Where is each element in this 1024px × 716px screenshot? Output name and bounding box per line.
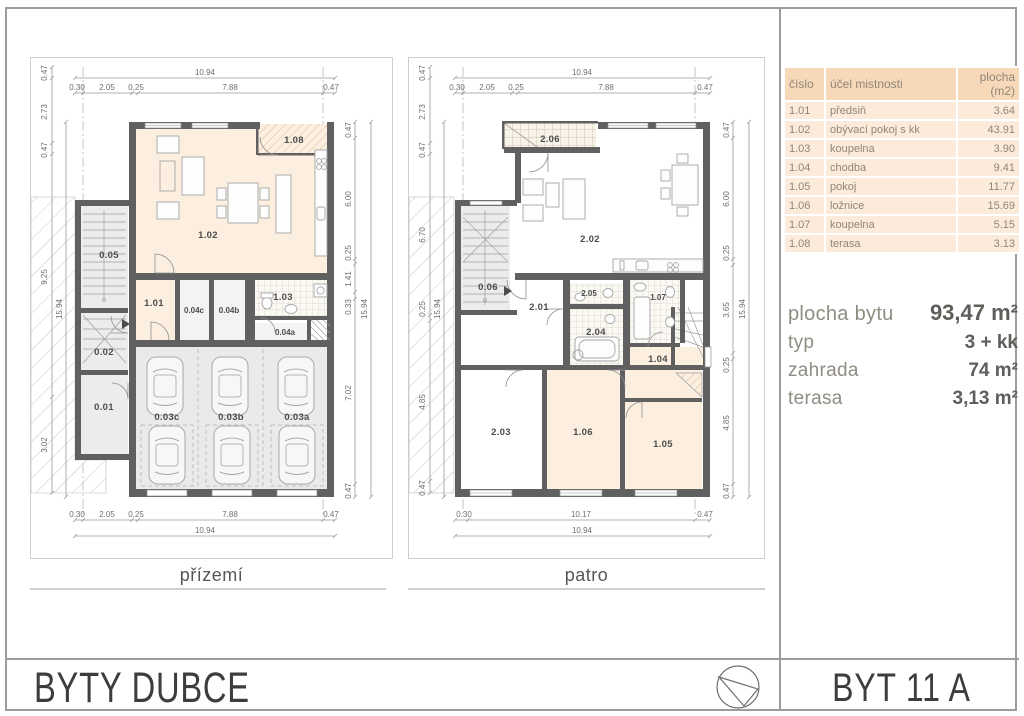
window <box>705 347 711 367</box>
dimension-label: 0.47 <box>323 510 339 519</box>
room-label: 2.04 <box>586 327 606 338</box>
dimension-label: 0.47 <box>418 480 427 496</box>
dimension-label: 15.94 <box>55 298 64 319</box>
floorplan-sheet: 1.08 1.02 0.05 1.01 0.04c 0.04b 1.03 0.0… <box>0 0 1024 716</box>
info-label: typ <box>788 332 814 354</box>
dimension-label: 0.47 <box>697 510 713 519</box>
room-label: 1.01 <box>144 298 164 309</box>
dimension-label: 3.65 <box>722 302 731 318</box>
car-icon <box>278 357 314 415</box>
info-value: 93,47 m² <box>930 300 1018 326</box>
dimension-label: 0.25 <box>128 510 144 519</box>
room-label: 1.07 <box>650 293 666 302</box>
dimension-label: 10.17 <box>571 510 592 519</box>
bathtub <box>634 297 650 339</box>
dimension-label: 9.25 <box>40 269 49 285</box>
room-area-table: číslo účel mistnosti plocha (m2) 1.01pře… <box>783 66 1021 254</box>
dimension-label: 10.94 <box>195 68 216 77</box>
dimension-label: 0.30 <box>69 510 85 519</box>
toilet <box>605 315 615 324</box>
dimension-label: 0.47 <box>722 122 731 138</box>
dimension-label: 2.05 <box>479 83 495 92</box>
dimension-label: 0.47 <box>323 83 339 92</box>
dimension-label: 7.02 <box>344 385 353 401</box>
dimension-label: 0.47 <box>344 483 353 499</box>
window <box>470 201 502 205</box>
toilet-tank <box>261 293 273 298</box>
garage-door <box>277 490 317 496</box>
room-label: 0.04a <box>275 328 296 337</box>
table-row: 1.08terasa3.13 <box>784 234 1020 253</box>
dimension-label: 7.88 <box>222 510 238 519</box>
kitchen-island <box>276 175 291 233</box>
room-label: 0.02 <box>94 347 114 358</box>
plan-patro-drawing: 2.06 2.02 0.06 2.01 2.05 2.04 1.07 1.04 … <box>408 57 765 559</box>
dimension-label: 10.94 <box>572 526 593 535</box>
col-header-cislo: číslo <box>784 67 825 101</box>
room-label: 0.06 <box>478 282 498 293</box>
apartment-info: plocha bytu 93,47 m² typ 3 + kk zahrada … <box>788 300 1018 416</box>
room-label: 0.04c <box>184 306 205 315</box>
dimension-label: 7.88 <box>598 83 614 92</box>
panel-divider-line <box>779 7 781 711</box>
room-label: 0.05 <box>99 250 119 261</box>
dimension-label: 0.25 <box>508 83 524 92</box>
col-header-plocha: plocha (m2) <box>957 67 1020 101</box>
dimension-label: 2.73 <box>418 104 427 120</box>
room-0-01 <box>81 375 128 454</box>
room-label: 1.02 <box>198 230 218 241</box>
room-0-06-stairs <box>461 206 510 310</box>
dimension-label: 7.88 <box>222 83 238 92</box>
chair <box>217 188 226 200</box>
dimension-label: 0.30 <box>456 510 472 519</box>
sofa <box>563 179 585 219</box>
washer <box>314 284 327 297</box>
dimension-label: 0.47 <box>40 142 49 158</box>
info-label: terasa <box>788 388 843 410</box>
dimension-label: 0.47 <box>344 122 353 138</box>
dimension-label: 0.25 <box>128 83 144 92</box>
table-row: 1.01předsiň3.64 <box>784 101 1020 120</box>
chair <box>260 188 269 200</box>
info-row: plocha bytu 93,47 m² <box>788 300 1018 326</box>
dimension-label: 0.47 <box>418 142 427 158</box>
room-label: 0.01 <box>94 402 114 413</box>
room-0-02 <box>81 313 128 370</box>
room-label: 1.03 <box>273 292 293 303</box>
chair <box>677 207 688 216</box>
dimension-label: 15.94 <box>433 298 442 319</box>
dimension-label: 2.05 <box>99 510 115 519</box>
dimension-label: 15.94 <box>360 298 369 319</box>
dimension-label: 0.25 <box>722 357 731 373</box>
room-label: 2.01 <box>529 302 549 313</box>
dining-table <box>228 183 258 223</box>
dimension-label: 0.25 <box>722 245 731 261</box>
info-row: zahrada 74 m² <box>788 360 1018 382</box>
armchair <box>157 136 179 153</box>
dining-table <box>672 165 698 205</box>
sofa <box>182 157 204 195</box>
dimension-label: 0.25 <box>418 301 427 317</box>
unit-title: BYT 11 A <box>804 666 1000 711</box>
plan-prizemi-drawing: 1.08 1.02 0.05 1.01 0.04c 0.04b 1.03 0.0… <box>30 57 393 559</box>
room-label: 1.08 <box>284 135 304 146</box>
project-title: BYTY DUBCE <box>34 664 250 713</box>
room-label: 0.03b <box>218 412 244 423</box>
info-value: 3,13 m² <box>953 388 1018 410</box>
chair <box>661 188 670 199</box>
dimension-label: 1.41 <box>344 271 353 287</box>
table-row: 1.05pokoj11.77 <box>784 177 1020 196</box>
dimension-label: 2.73 <box>40 104 49 120</box>
garage-door <box>212 490 252 496</box>
toilet <box>603 289 613 298</box>
dimension-label: 0.47 <box>722 483 731 499</box>
chair <box>661 170 670 181</box>
room-label: 0.03a <box>284 412 310 423</box>
car-icon <box>214 426 250 484</box>
room-label: 0.03c <box>154 412 179 423</box>
washbasin <box>285 305 297 314</box>
plan-title-prizemi: přízemí <box>30 565 393 586</box>
chair <box>260 206 269 218</box>
kitchen-counter <box>613 259 703 272</box>
dimension-label: 4.85 <box>722 415 731 431</box>
table-row: 1.06ložnice15.69 <box>784 196 1020 215</box>
plan-prizemi: 1.08 1.02 0.05 1.01 0.04c 0.04b 1.03 0.0… <box>30 57 393 564</box>
room-label: 2.03 <box>491 427 511 438</box>
dimension-label: 10.94 <box>572 68 593 77</box>
info-row: terasa 3,13 m² <box>788 388 1018 410</box>
toilet <box>262 297 272 309</box>
car-icon <box>147 357 183 415</box>
car-icon <box>149 426 185 484</box>
dimension-label: 2.05 <box>99 83 115 92</box>
plan-title-patro: patro <box>408 565 765 586</box>
dimension-label: 0.30 <box>449 83 465 92</box>
toilet <box>666 287 675 298</box>
room-label: 2.05 <box>581 289 597 298</box>
washbasin <box>634 283 646 291</box>
table-row: 1.02obývací pokoj s kk43.91 <box>784 120 1020 139</box>
room-label: 0.04b <box>219 306 240 315</box>
dimension-label: 6.00 <box>344 191 353 207</box>
chair <box>677 154 688 163</box>
dimension-label: 0.47 <box>40 65 49 81</box>
table-header-row: číslo účel mistnosti plocha (m2) <box>784 67 1020 101</box>
dimension-label: 15.94 <box>738 298 747 319</box>
armchair <box>523 205 543 221</box>
room-label: 1.04 <box>648 354 668 365</box>
col-header-ucel: účel mistnosti <box>825 67 957 101</box>
info-row: typ 3 + kk <box>788 332 1018 354</box>
dimension-label: 6.00 <box>722 191 731 207</box>
north-arrow-icon <box>712 662 764 712</box>
dimension-label: 4.85 <box>418 394 427 410</box>
room-label: 1.06 <box>573 427 593 438</box>
plan-patro: 2.06 2.02 0.06 2.01 2.05 2.04 1.07 1.04 … <box>408 57 765 564</box>
table-row: 1.04chodba9.41 <box>784 158 1020 177</box>
room-label: 2.06 <box>540 134 560 145</box>
room-1-01 <box>134 280 175 340</box>
garage-door <box>147 490 187 496</box>
info-value: 74 m² <box>968 360 1018 382</box>
washbasin <box>666 317 675 327</box>
table-row: 1.07koupelna5.15 <box>784 215 1020 234</box>
room-label: 2.02 <box>580 234 600 245</box>
bathtub <box>575 337 619 361</box>
info-value: 3 + kk <box>965 332 1018 354</box>
dimension-label: 0.30 <box>69 83 85 92</box>
info-label: plocha bytu <box>788 303 894 326</box>
chair <box>217 206 226 218</box>
info-label: zahrada <box>788 360 859 382</box>
dimension-label: 0.33 <box>344 299 353 315</box>
footer-divider-line <box>5 658 1019 660</box>
dimension-label: 0.47 <box>697 83 713 92</box>
dimension-label: 0.47 <box>418 65 427 81</box>
title-underline <box>30 588 386 590</box>
dimension-label: 3.02 <box>40 437 49 453</box>
armchair <box>523 179 543 195</box>
armchair <box>157 202 179 219</box>
table-row: 1.03koupelna3.90 <box>784 139 1020 158</box>
car-icon <box>212 357 248 415</box>
dimension-label: 6.70 <box>418 227 427 243</box>
dimension-label: 0.25 <box>344 245 353 261</box>
room-label: 1.05 <box>653 439 673 450</box>
neighbour-hatch <box>409 197 454 493</box>
title-underline <box>408 588 765 590</box>
dimension-label: 10.94 <box>195 526 216 535</box>
car-icon <box>279 426 315 484</box>
